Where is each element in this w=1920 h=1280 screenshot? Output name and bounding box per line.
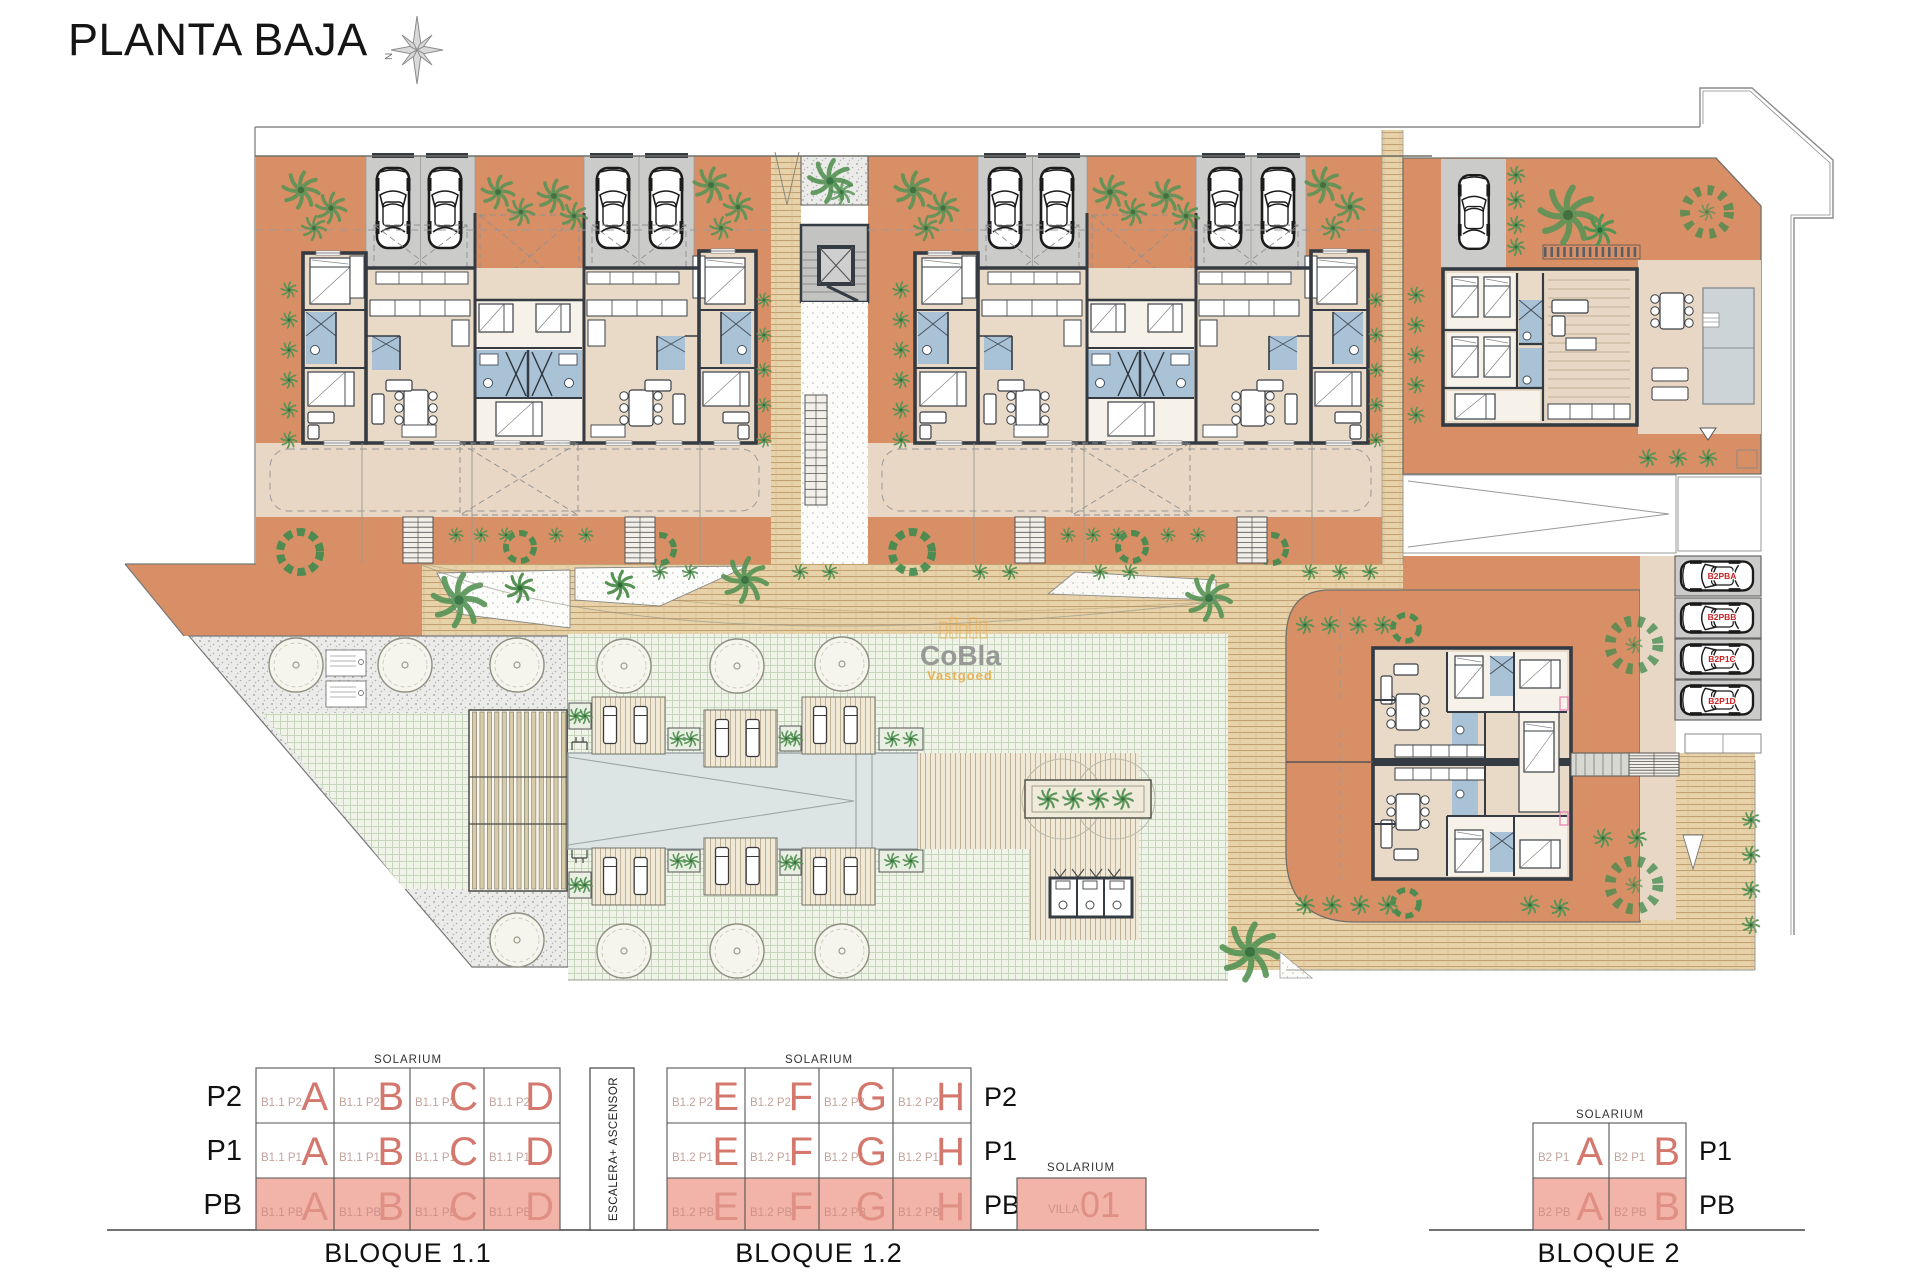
svg-text:B2P1C: B2P1C: [1708, 654, 1735, 664]
svg-text:D: D: [525, 1130, 554, 1174]
svg-text:F: F: [789, 1130, 813, 1174]
svg-text:H: H: [936, 1185, 965, 1229]
svg-text:P1: P1: [984, 1136, 1017, 1166]
svg-text:B1.2 P2: B1.2 P2: [672, 1097, 713, 1109]
svg-text:BLOQUE 1.2: BLOQUE 1.2: [735, 1238, 903, 1268]
svg-text:E: E: [712, 1130, 739, 1174]
svg-text:PB: PB: [203, 1189, 242, 1221]
svg-text:G: G: [856, 1185, 887, 1229]
svg-text:ESCALERA+ ASCENSOR: ESCALERA+ ASCENSOR: [608, 1077, 620, 1221]
svg-text:C: C: [449, 1075, 478, 1119]
svg-text:G: G: [856, 1075, 887, 1119]
svg-text:H: H: [936, 1075, 965, 1119]
svg-text:VILLA: VILLA: [1048, 1204, 1080, 1216]
svg-text:B: B: [377, 1185, 404, 1229]
svg-text:Vastgoed: Vastgoed: [927, 668, 993, 683]
svg-text:B1.1 P1: B1.1 P1: [261, 1152, 302, 1164]
svg-text:F: F: [789, 1075, 813, 1119]
svg-text:B1.2 P2: B1.2 P2: [750, 1097, 791, 1109]
svg-text:B: B: [377, 1130, 404, 1174]
svg-text:B2P1D: B2P1D: [1708, 696, 1735, 706]
svg-text:B1.2 P1: B1.2 P1: [750, 1152, 791, 1164]
svg-text:F: F: [789, 1185, 813, 1229]
svg-text:BLOQUE 2: BLOQUE 2: [1537, 1238, 1680, 1268]
svg-text:B1.1 P2: B1.1 P2: [339, 1097, 380, 1109]
svg-text:P1: P1: [207, 1135, 242, 1167]
svg-text:P2: P2: [984, 1082, 1017, 1112]
svg-text:SOLARIUM: SOLARIUM: [1576, 1109, 1644, 1121]
svg-text:A: A: [301, 1185, 328, 1229]
svg-text:SOLARIUM: SOLARIUM: [374, 1054, 442, 1066]
svg-text:E: E: [712, 1185, 739, 1229]
svg-text:B: B: [1653, 1185, 1680, 1229]
svg-text:PB: PB: [984, 1190, 1020, 1220]
svg-text:G: G: [856, 1130, 887, 1174]
svg-text:D: D: [525, 1185, 554, 1229]
svg-text:01: 01: [1080, 1184, 1120, 1225]
svg-text:B1.2 PB: B1.2 PB: [750, 1207, 793, 1219]
svg-text:SOLARIUM: SOLARIUM: [785, 1054, 853, 1066]
svg-text:B1.2 PB: B1.2 PB: [898, 1207, 941, 1219]
svg-text:A: A: [1576, 1130, 1603, 1174]
svg-text:P1: P1: [1699, 1136, 1732, 1166]
svg-text:B1.1 PB: B1.1 PB: [261, 1207, 304, 1219]
svg-text:BLOQUE 1.1: BLOQUE 1.1: [324, 1238, 492, 1268]
svg-text:N: N: [384, 53, 395, 60]
svg-text:B1.2 PB: B1.2 PB: [672, 1207, 715, 1219]
svg-text:B1.1 P1: B1.1 P1: [489, 1152, 530, 1164]
svg-text:B1.2 P1: B1.2 P1: [898, 1152, 939, 1164]
svg-text:H: H: [936, 1130, 965, 1174]
svg-text:B2 PB: B2 PB: [1538, 1207, 1571, 1219]
svg-text:B2 P1: B2 P1: [1614, 1152, 1645, 1164]
svg-text:B1.2 P2: B1.2 P2: [898, 1097, 939, 1109]
svg-text:P2: P2: [207, 1081, 242, 1113]
svg-text:E: E: [712, 1075, 739, 1119]
svg-text:A: A: [1576, 1185, 1603, 1229]
svg-text:C: C: [449, 1185, 478, 1229]
svg-text:PB: PB: [1699, 1190, 1735, 1220]
svg-text:C: C: [449, 1130, 478, 1174]
svg-text:D: D: [525, 1075, 554, 1119]
svg-text:B1.1 P1: B1.1 P1: [339, 1152, 380, 1164]
svg-text:B1.2 P1: B1.2 P1: [672, 1152, 713, 1164]
svg-text:B1.1 P2: B1.1 P2: [261, 1097, 302, 1109]
svg-text:A: A: [301, 1075, 328, 1119]
svg-text:B2 P1: B2 P1: [1538, 1152, 1569, 1164]
svg-text:B: B: [1653, 1130, 1680, 1174]
svg-text:PLANTA BAJA: PLANTA BAJA: [68, 14, 368, 65]
svg-text:A: A: [301, 1130, 328, 1174]
svg-text:B1.1 P2: B1.1 P2: [489, 1097, 530, 1109]
svg-text:B: B: [377, 1075, 404, 1119]
svg-text:B2PBB: B2PBB: [1708, 612, 1737, 622]
svg-text:SOLARIUM: SOLARIUM: [1047, 1162, 1115, 1174]
svg-text:CoBla: CoBla: [920, 640, 1001, 671]
svg-text:B1.1 PB: B1.1 PB: [339, 1207, 382, 1219]
svg-text:B2PBA: B2PBA: [1708, 571, 1737, 581]
svg-text:B2 PB: B2 PB: [1614, 1207, 1647, 1219]
